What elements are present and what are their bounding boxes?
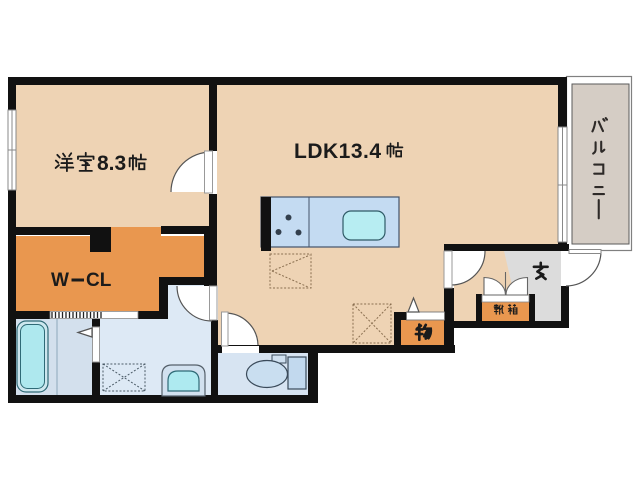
svg-text:W: W <box>51 270 69 291</box>
svg-text:8.3: 8.3 <box>97 152 126 175</box>
svg-text:CL: CL <box>86 270 112 291</box>
svg-text:LDK13.4: LDK13.4 <box>294 140 382 163</box>
